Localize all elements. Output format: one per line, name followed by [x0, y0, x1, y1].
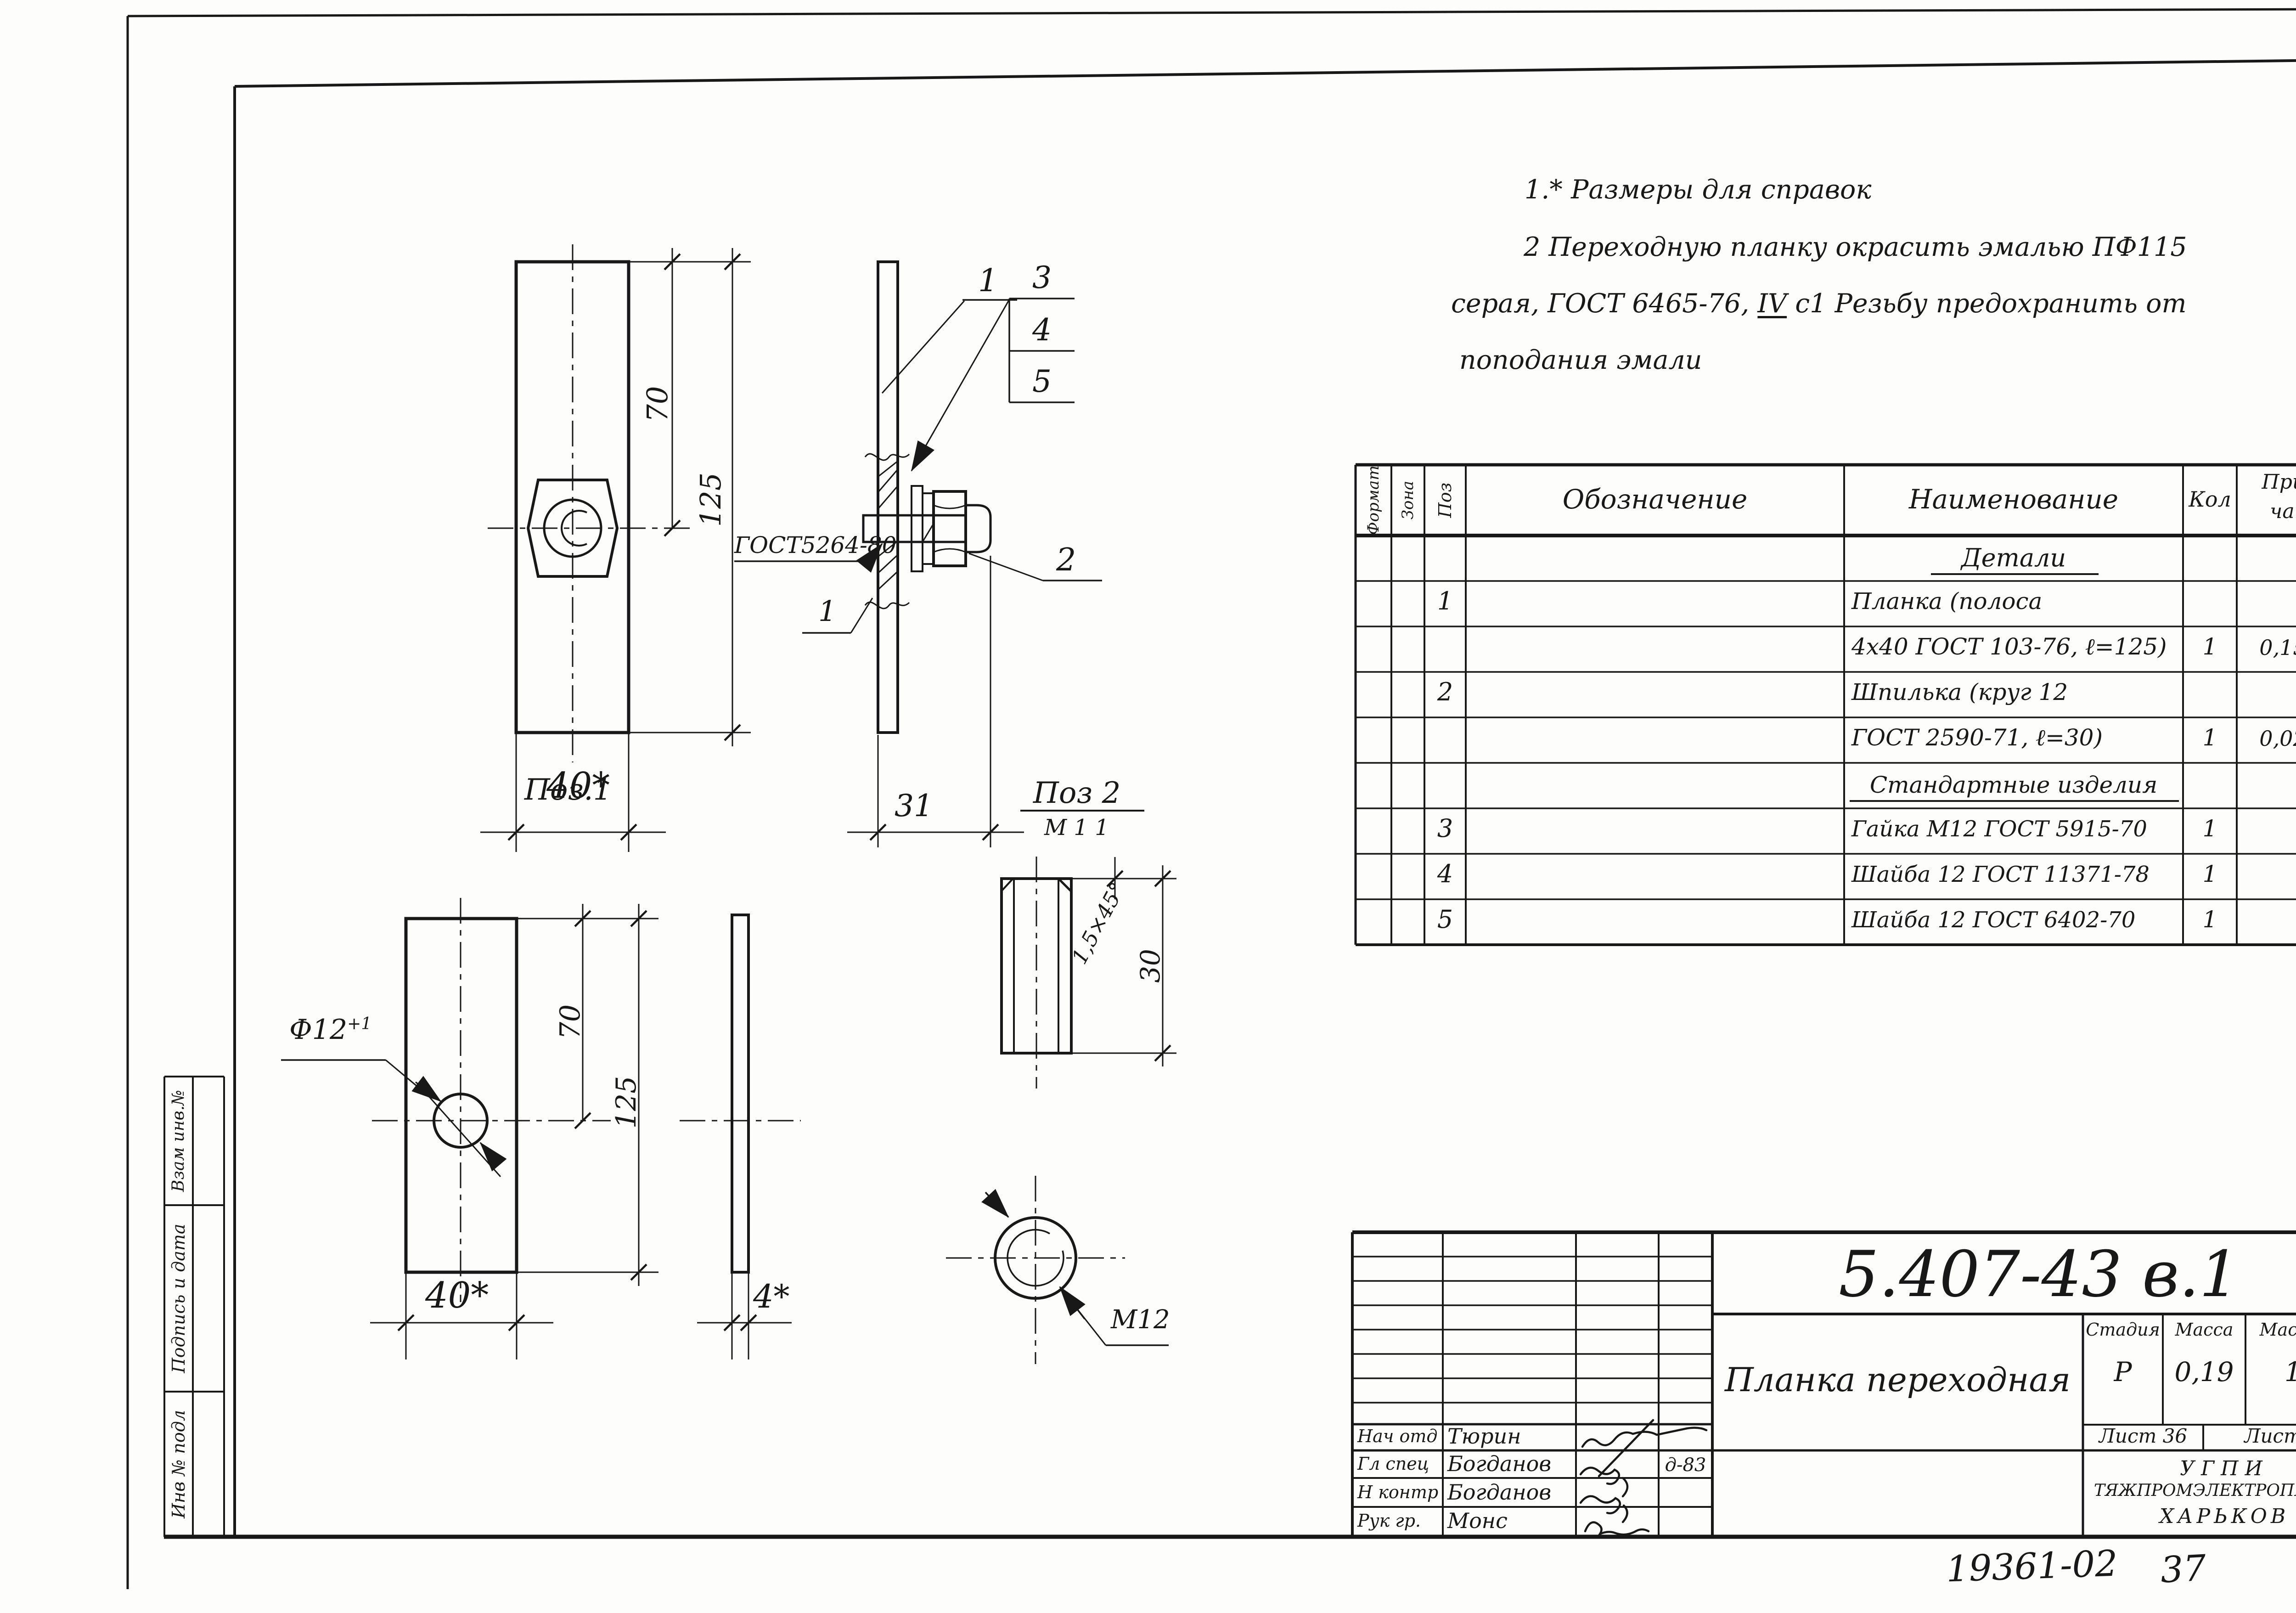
spec-row-name: Шпилька (круг 12	[1851, 681, 2068, 704]
stamp-name-3: Богданов	[1447, 1482, 1551, 1503]
spec-col-note-2: чание	[2237, 502, 2296, 522]
poz1-title: Поз.1	[524, 775, 612, 805]
stamp-role-3: Н контр	[1357, 1483, 1438, 1501]
spec-row-name: Шайба 12 ГОСТ 6402-70	[1851, 909, 2135, 931]
weld-size-label: 1	[818, 597, 836, 626]
mass-value: 0,19	[2163, 1359, 2245, 1385]
spec-row-qty: 1	[2183, 726, 2237, 749]
stamp-role-2: Гл спец	[1357, 1455, 1429, 1472]
spec-row-name: Гайка М12 ГОСТ 5915-70	[1851, 818, 2147, 840]
stage-value: Р	[2083, 1359, 2163, 1385]
poz1-dim-125: 125	[613, 1076, 640, 1129]
org-line-2: ТЯЖПРОМЭЛЕКТРОПРОЕКТ	[2083, 1483, 2296, 1499]
mass-label: Масса	[2163, 1321, 2245, 1338]
poz1-dim-4: 4*	[753, 1280, 790, 1313]
note-line-2: 2 Переходную планку окрасить эмалью ПФ11…	[1524, 234, 2187, 260]
stamp-name-2: Богданов	[1447, 1453, 1551, 1474]
spec-col-format: Формат	[1366, 465, 1381, 535]
asm-dim-70: 70	[643, 386, 672, 423]
spec-row-name: Планка (полоса	[1851, 590, 2042, 613]
note-line-1: 1.* Размеры для справок	[1525, 177, 1871, 203]
org-line-3: ХАРЬКОВ	[2083, 1506, 2296, 1527]
spec-row-name: ГОСТ 2590-71, ℓ=30)	[1851, 726, 2103, 749]
note-line-3-after: с1 Резьбу предохранить от	[1787, 288, 2186, 319]
stamp-name-4: Монс	[1447, 1510, 1508, 1531]
spec-row-qty: 1	[2183, 863, 2237, 885]
poz2-view	[946, 811, 1176, 1364]
note-line-4: поподания эмали	[1459, 347, 1702, 373]
note-line-3-before: серая, ГОСТ 6465-76,	[1451, 288, 1757, 319]
stamp-role-1: Нач отд	[1357, 1427, 1438, 1445]
spec-row-poz: 2	[1424, 680, 1466, 705]
callout-2-label: 2	[1056, 545, 1076, 576]
poz2-title: Поз 2	[1033, 778, 1120, 808]
spec-table-grid	[1356, 465, 2296, 945]
stamp-role-4: Рук гр.	[1357, 1512, 1421, 1529]
spec-col-note-1: Приме-	[2237, 472, 2296, 492]
spec-row-qty: 1	[2183, 817, 2237, 840]
spec-row-name: Шайба 12 ГОСТ 11371-78	[1851, 863, 2150, 885]
spec-col-qty: Кол	[2183, 489, 2237, 510]
poz1-hole-dia: Ф12+1	[289, 1016, 371, 1043]
org-line-1: УГПИ	[2083, 1459, 2296, 1479]
footer-sheet-number: 37	[2160, 1550, 2207, 1588]
spec-row-section: Стандартные изделия	[1844, 773, 2183, 796]
note-line-3-roman: IV	[1757, 288, 1787, 319]
doc-code: 5.407-43 в.1	[1712, 1243, 2296, 1306]
poz2-dim-30: 30	[1137, 949, 1164, 983]
asm-dim-125: 125	[697, 473, 725, 527]
stamp-name-1: Тюрин	[1447, 1426, 1521, 1447]
poz2-thread-label: М12	[1111, 1307, 1170, 1333]
sidebar-label-inv: Инв № подл	[170, 1410, 187, 1518]
spec-row-poz: 4	[1424, 862, 1466, 886]
hole-dia-value: Ф12	[289, 1014, 347, 1046]
spec-row-poz: 5	[1424, 907, 1466, 932]
note-line-3: серая, ГОСТ 6465-76, IV с1 Резьбу предох…	[1451, 291, 2187, 317]
sidebar-label-vzam: Взам инв.№	[170, 1090, 187, 1192]
asm-dim-31: 31	[895, 791, 933, 821]
hole-dia-tol: +1	[347, 1015, 371, 1033]
poz2-scale: М 1 1	[1044, 817, 1109, 839]
spec-row-poz: 3	[1424, 816, 1466, 841]
spec-row-qty: 1	[2183, 635, 2237, 658]
callout-5-label: 5	[1032, 367, 1052, 397]
spec-row-note: 0,027кг	[2237, 728, 2296, 749]
spec-row-poz: 1	[1424, 589, 1466, 614]
spec-col-zona: Зона	[1400, 481, 1416, 519]
drawing-sheet: 36 1.* Размеры для справок 2 Переходную …	[0, 0, 2296, 1613]
weld-gost-note: ГОСТ5264-80	[734, 534, 896, 557]
poz1-dim-70: 70	[557, 1004, 584, 1039]
sidebar-label-podpis: Подпись и дата	[170, 1224, 187, 1373]
sheets-label: Листов	[2203, 1427, 2296, 1446]
sheet-label: Лист 36	[2083, 1427, 2203, 1446]
poz1-dim-40: 40*	[425, 1278, 489, 1314]
stamp-date-2: д-83	[1659, 1456, 1712, 1474]
footer-doc-number: 19361-02	[1946, 1546, 2118, 1588]
spec-row-note: 0,157кг	[2237, 637, 2296, 658]
spec-row-name: 4х40 ГОСТ 103-76, ℓ=125)	[1851, 635, 2167, 658]
scale-value: 1 2	[2245, 1359, 2296, 1385]
callout-4-label: 4	[1032, 315, 1052, 345]
spec-row-section: Детали	[1844, 546, 2183, 570]
stage-label: Стадия	[2083, 1321, 2163, 1338]
spec-col-poz: Поз	[1436, 483, 1454, 518]
callout-3-label: 3	[1032, 263, 1052, 293]
spec-col-designation: Обозначение	[1466, 486, 1844, 513]
poz1-view	[281, 898, 801, 1359]
spec-col-name: Наименование	[1844, 486, 2183, 513]
drawing-title: Планка переходная	[1712, 1363, 2083, 1396]
callout-1-label: 1	[978, 265, 998, 297]
spec-row-qty: 1	[2183, 908, 2237, 931]
scale-label: Масштаб	[2245, 1321, 2296, 1338]
